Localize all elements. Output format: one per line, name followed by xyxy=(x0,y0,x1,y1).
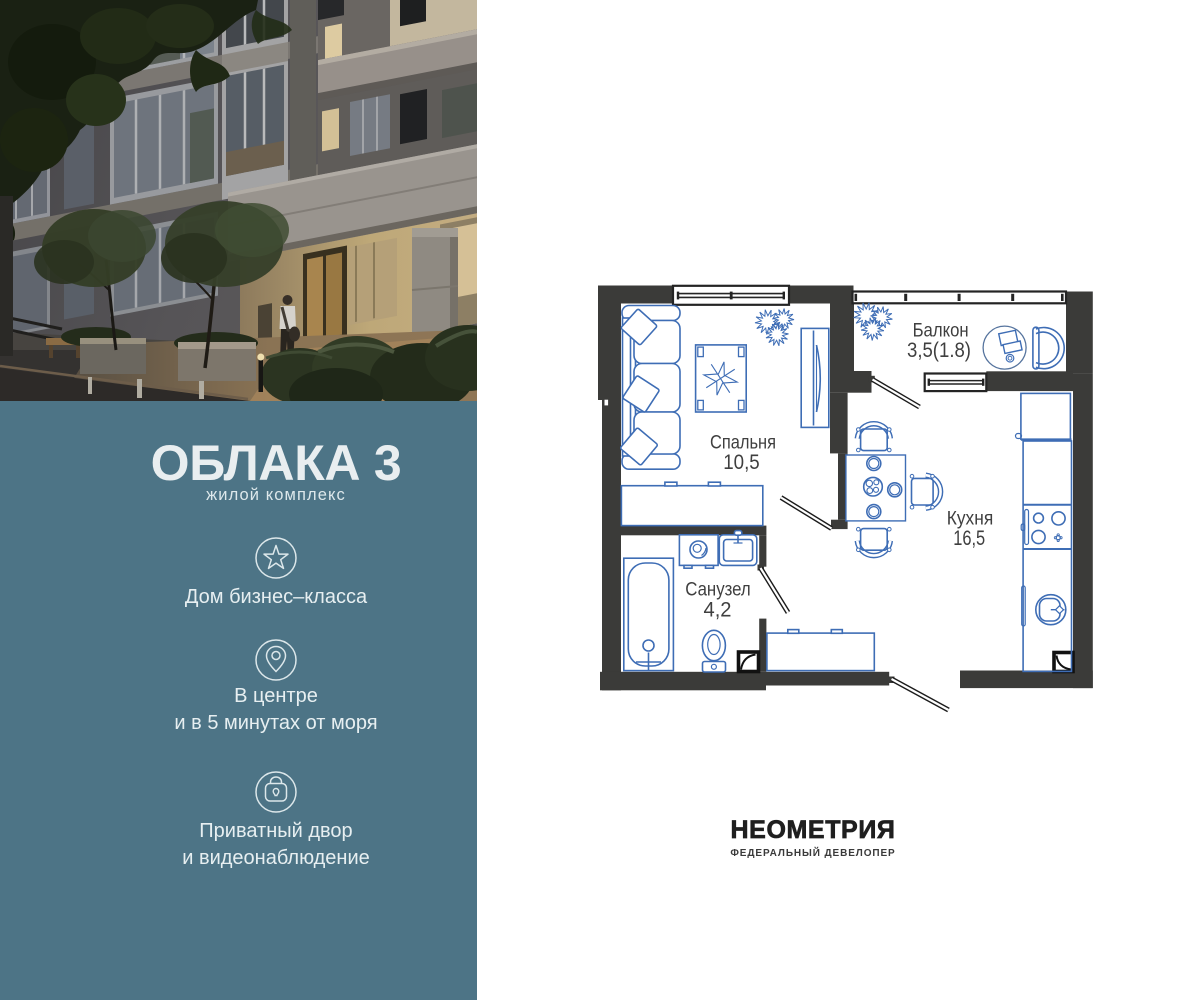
svg-text:16,5: 16,5 xyxy=(953,526,985,550)
svg-text:10,5: 10,5 xyxy=(723,450,760,474)
svg-text:4,2: 4,2 xyxy=(704,597,732,621)
svg-text:3,5(1.8): 3,5(1.8) xyxy=(907,338,971,362)
